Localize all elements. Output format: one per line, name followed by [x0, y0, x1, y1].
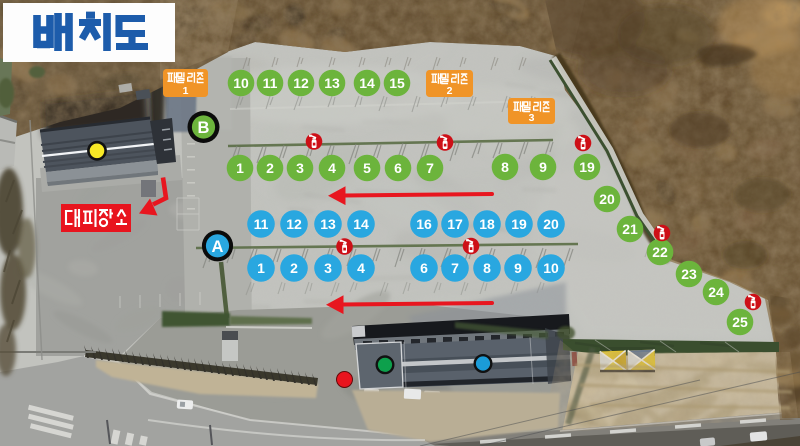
svg-text:12: 12	[293, 75, 309, 91]
svg-text:1: 1	[183, 85, 189, 97]
svg-text:19: 19	[511, 216, 527, 232]
svg-text:14: 14	[359, 75, 375, 91]
svg-text:16: 16	[416, 216, 432, 232]
svg-text:11: 11	[254, 216, 269, 232]
svg-text:6: 6	[394, 160, 402, 176]
svg-text:7: 7	[426, 160, 434, 176]
svg-text:5: 5	[363, 160, 371, 176]
svg-text:15: 15	[389, 75, 405, 91]
svg-text:17: 17	[447, 216, 463, 232]
svg-text:20: 20	[599, 191, 615, 207]
svg-text:22: 22	[652, 244, 668, 260]
svg-text:4: 4	[357, 260, 365, 276]
svg-text:1: 1	[236, 160, 244, 176]
svg-text:12: 12	[286, 216, 302, 232]
svg-text:3: 3	[529, 112, 535, 124]
svg-text:13: 13	[320, 216, 336, 232]
svg-text:A: A	[212, 238, 224, 256]
svg-text:9: 9	[514, 260, 522, 276]
svg-text:8: 8	[483, 260, 491, 276]
svg-text:2: 2	[266, 160, 274, 176]
svg-text:19: 19	[579, 159, 595, 175]
svg-text:14: 14	[353, 216, 369, 232]
svg-text:7: 7	[451, 260, 459, 276]
svg-text:20: 20	[543, 216, 559, 232]
svg-text:13: 13	[324, 75, 340, 91]
svg-text:25: 25	[732, 314, 748, 330]
svg-text:10: 10	[543, 260, 559, 276]
svg-text:1: 1	[257, 260, 265, 276]
svg-text:6: 6	[420, 260, 428, 276]
svg-text:2: 2	[447, 85, 453, 97]
svg-text:8: 8	[501, 159, 509, 175]
svg-text:18: 18	[479, 216, 495, 232]
svg-text:4: 4	[328, 160, 336, 176]
svg-text:23: 23	[681, 266, 697, 282]
svg-text:3: 3	[324, 260, 332, 276]
svg-text:11: 11	[263, 75, 278, 91]
svg-text:9: 9	[539, 159, 547, 175]
svg-text:10: 10	[233, 75, 249, 91]
svg-text:2: 2	[290, 260, 298, 276]
svg-text:24: 24	[708, 284, 724, 300]
svg-text:21: 21	[622, 221, 638, 237]
svg-text:3: 3	[296, 160, 304, 176]
svg-text:B: B	[198, 119, 210, 137]
